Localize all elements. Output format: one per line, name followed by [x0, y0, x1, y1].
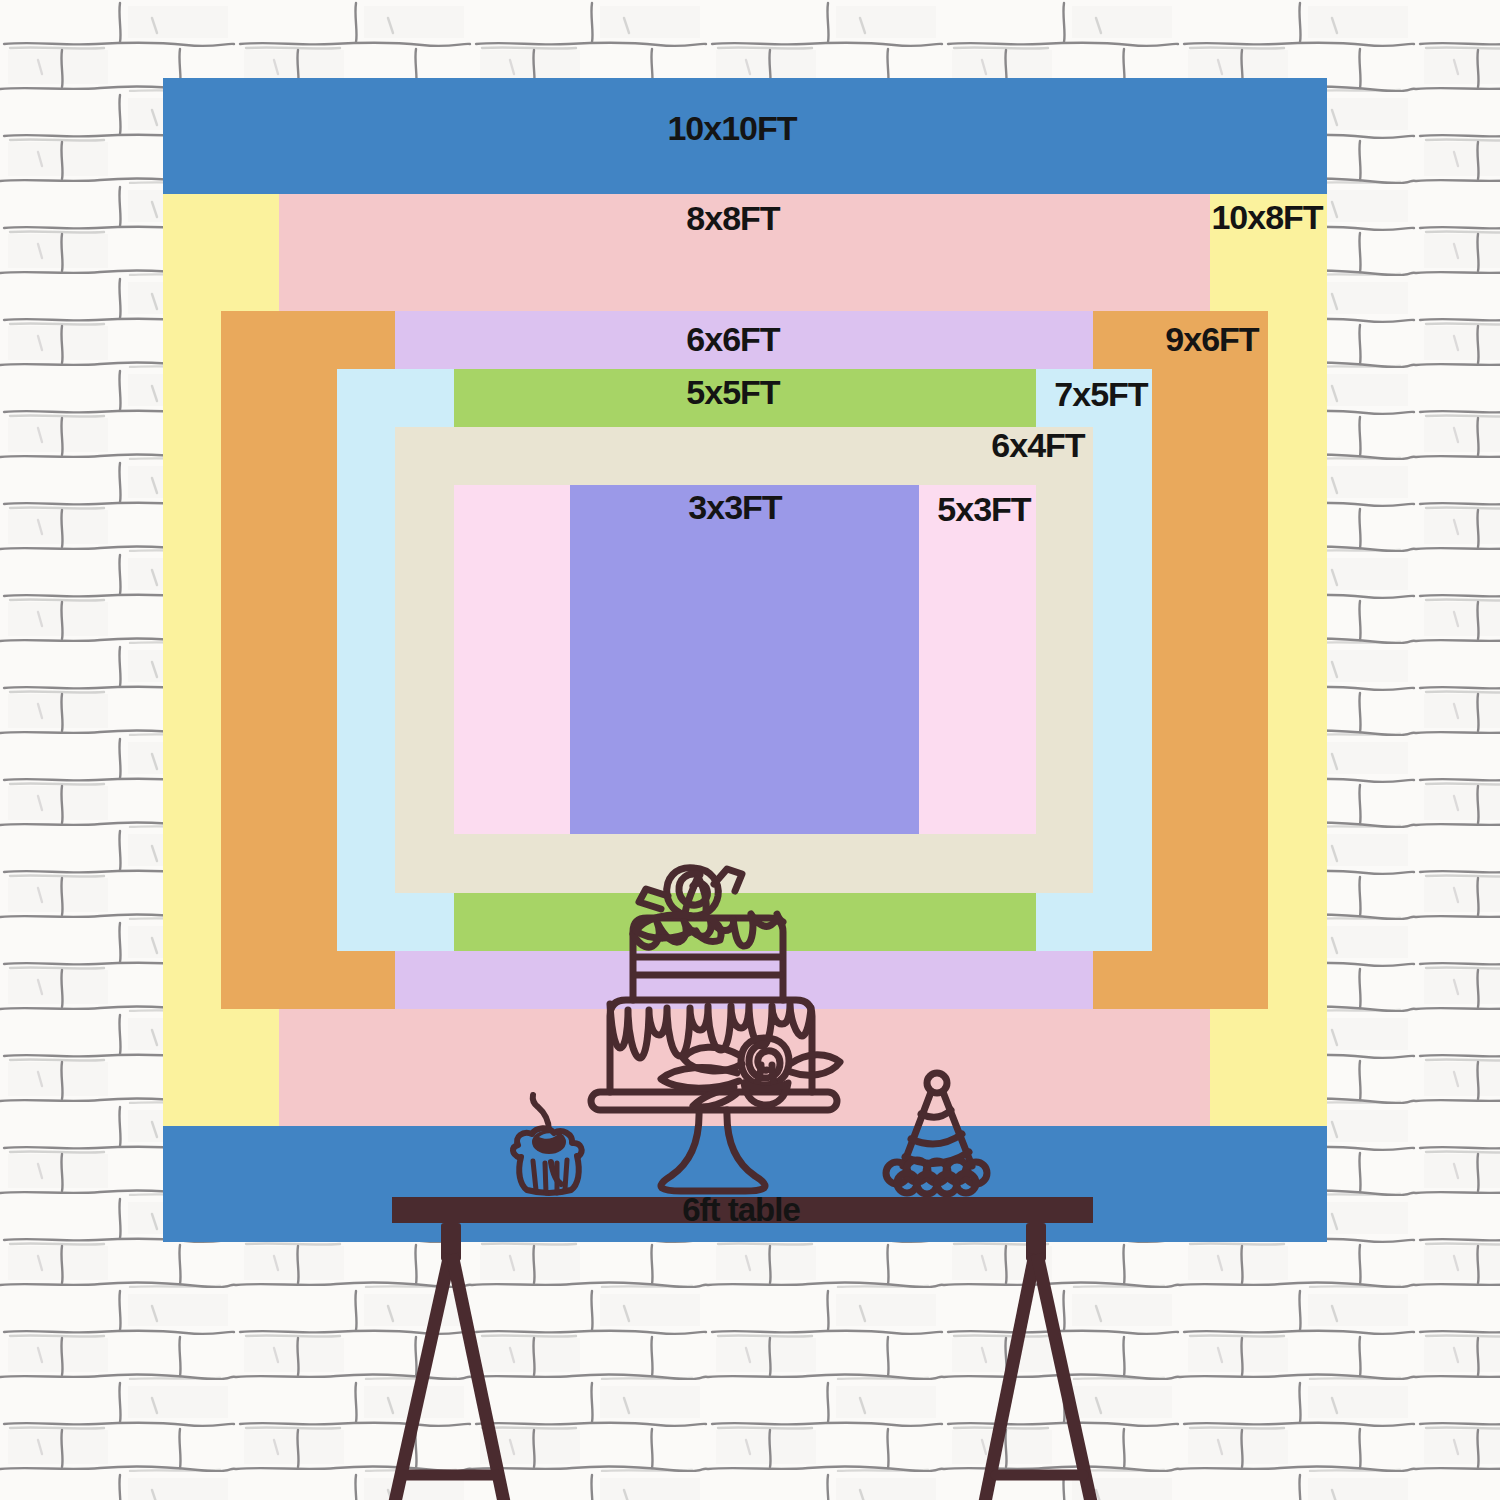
table-size-label: 6ft table — [682, 1191, 800, 1229]
tiered-cake-icon — [591, 868, 840, 1191]
trestle-table-icon — [392, 1197, 1093, 1500]
party-hat-icon — [886, 1073, 987, 1194]
table-and-cake-illustration — [0, 0, 1500, 1500]
backdrop-size-chart: 10x10FT 10x8FT 8x8FT 9x6FT 6x6FT 7x5FT 5… — [0, 0, 1500, 1500]
cupcake-icon — [513, 1095, 582, 1193]
